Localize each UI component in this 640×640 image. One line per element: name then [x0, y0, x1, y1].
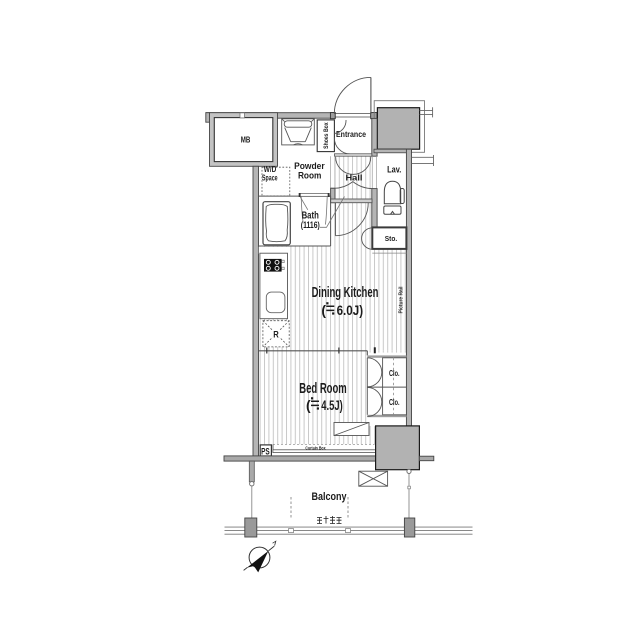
svg-text:(1116): (1116) — [301, 220, 320, 230]
svg-text:Space: Space — [262, 174, 278, 183]
svg-text:Picture Rail: Picture Rail — [398, 286, 404, 313]
svg-text:(: ( — [321, 303, 326, 318]
svg-text:Room: Room — [298, 171, 322, 182]
svg-text:6.0J): 6.0J) — [337, 303, 364, 318]
svg-text:R: R — [273, 330, 279, 340]
svg-text:PS: PS — [261, 446, 270, 456]
svg-text:Sto.: Sto. — [385, 234, 397, 243]
svg-text:Balcony: Balcony — [311, 491, 347, 503]
svg-text:Bed Room: Bed Room — [299, 381, 346, 397]
svg-text:Shoes Box: Shoes Box — [324, 122, 330, 149]
svg-text:Dining Kitchen: Dining Kitchen — [312, 285, 379, 301]
svg-text:MB: MB — [241, 134, 251, 144]
svg-text:4.5J): 4.5J) — [321, 398, 343, 413]
svg-text:Lav.: Lav. — [387, 165, 401, 175]
svg-text:Clo.: Clo. — [389, 369, 400, 378]
svg-text:Hall: Hall — [346, 172, 363, 182]
svg-text:(: ( — [306, 398, 311, 413]
svg-text:Clo.: Clo. — [389, 398, 400, 407]
